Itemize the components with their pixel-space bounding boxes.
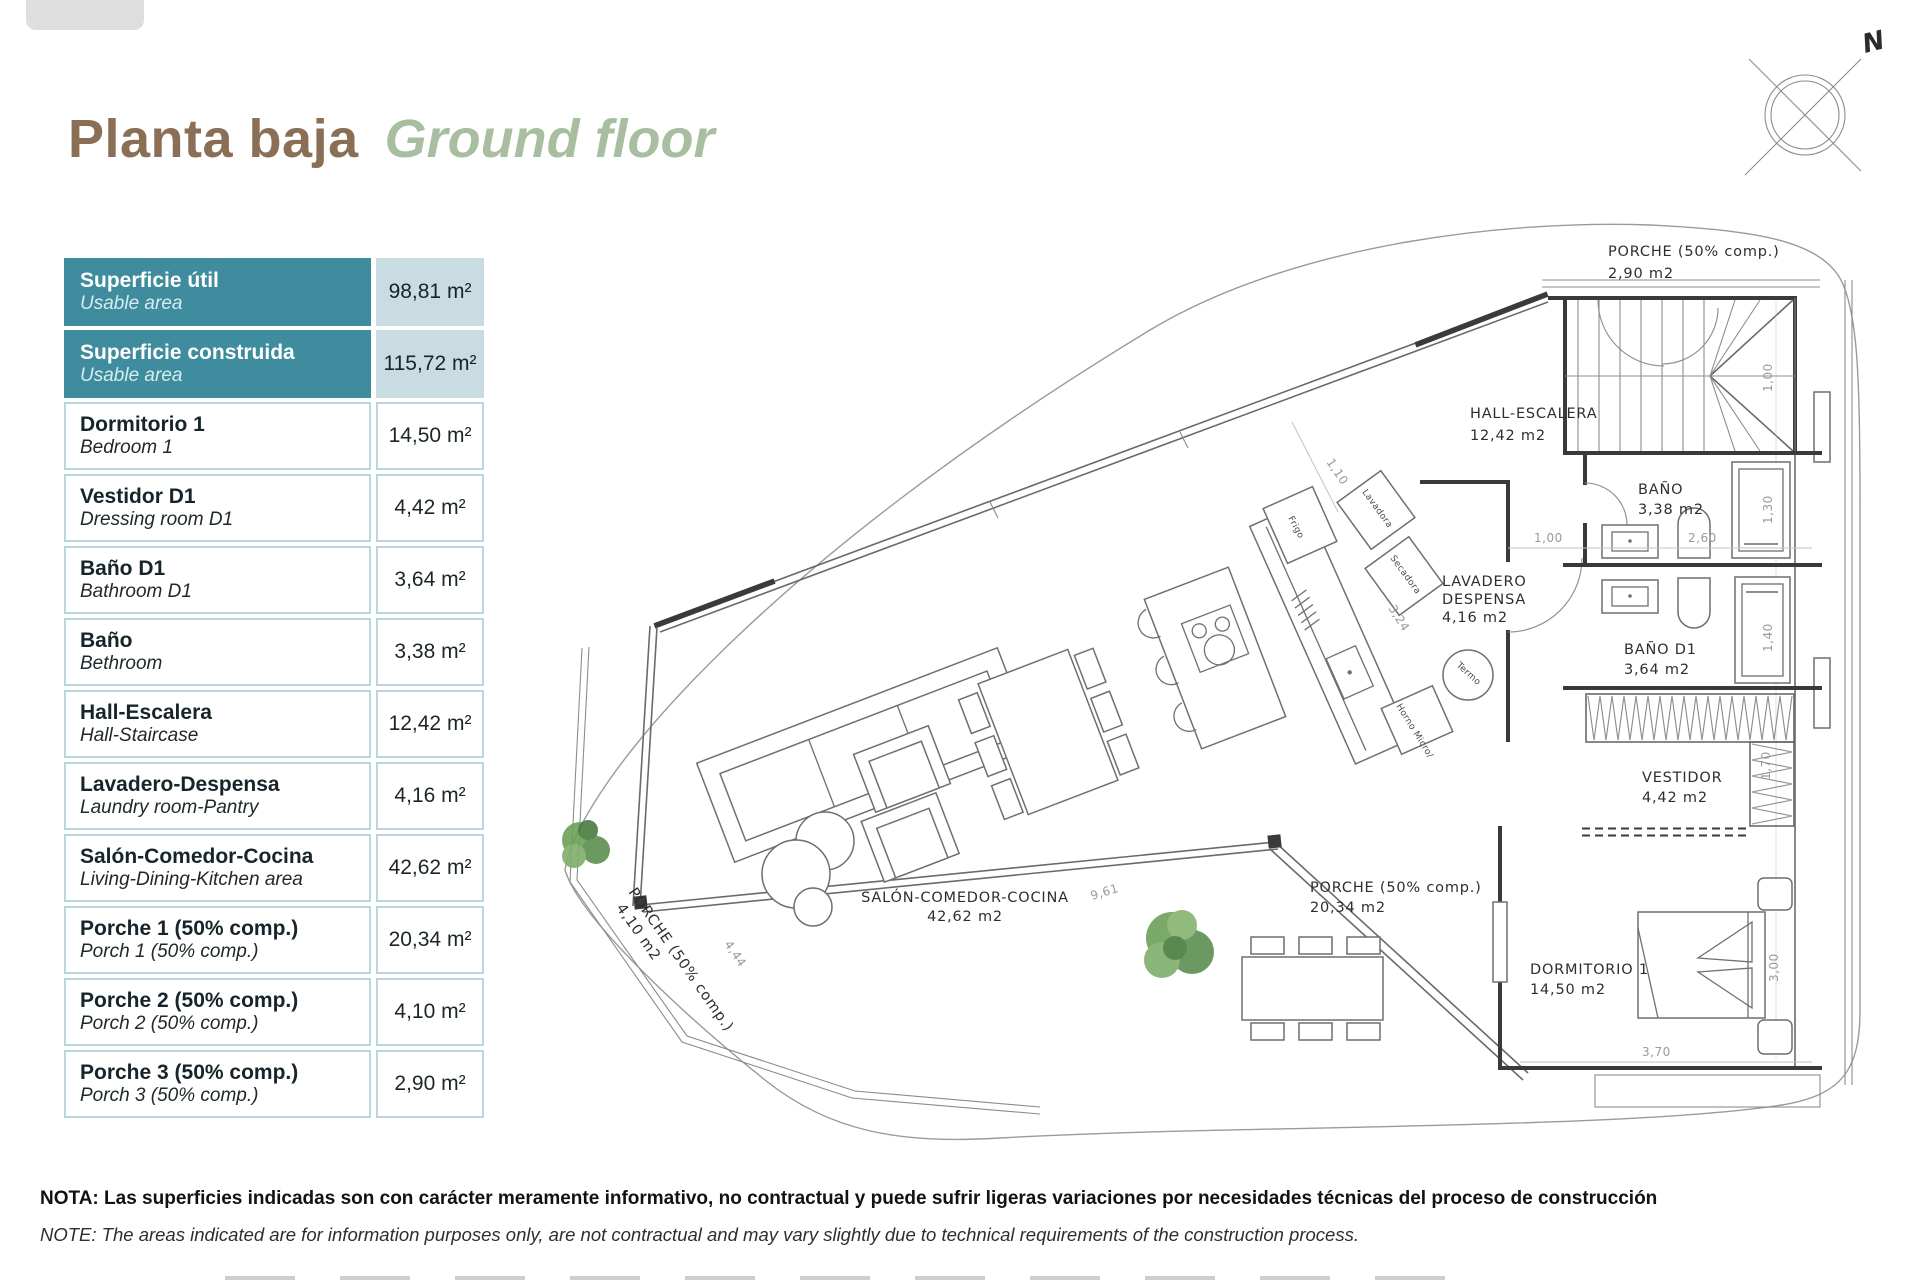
- row-value: 4,10 m²: [376, 978, 484, 1046]
- porch1-label: PORCHE (50% comp.): [1310, 880, 1482, 896]
- bedroom-label: DORMITORIO 1: [1530, 962, 1649, 978]
- dim-1-10: 1,10: [1324, 456, 1352, 488]
- row-label-en: Living-Dining-Kitchen area: [80, 869, 355, 892]
- table-row: Lavadero-DespensaLaundry room-Pantry 4,1…: [64, 762, 484, 830]
- dim-9-61: 9,61: [1089, 881, 1121, 903]
- row-label-es: Salón-Comedor-Cocina: [80, 845, 355, 869]
- dim-1-30: 1,30: [1761, 495, 1775, 524]
- porch3-area: 2,90 m2: [1608, 266, 1674, 282]
- tree: [562, 820, 610, 868]
- kitchen-island: [1130, 567, 1286, 754]
- row-label-es: Hall-Escalera: [80, 701, 355, 725]
- page-title: Planta bajaGround floor: [68, 108, 715, 170]
- porch-dining-set: [1242, 937, 1383, 1040]
- dressing-area: 4,42 m2: [1642, 790, 1708, 806]
- row-value: 98,81 m²: [376, 258, 484, 326]
- row-label-es: Superficie construida: [80, 341, 355, 365]
- bedroom-area: 14,50 m2: [1530, 982, 1606, 998]
- title-spanish: Planta baja: [68, 109, 359, 169]
- page-corner-artifact: [26, 0, 144, 30]
- floorplan-drawing: Frigo Lavadora Secadora Termo Horno Micr…: [520, 180, 1920, 1180]
- nightstand: [1758, 1020, 1792, 1054]
- row-value: 115,72 m²: [376, 330, 484, 398]
- row-label-es: Porche 1 (50% comp.): [80, 917, 355, 941]
- table-row: Superficie útilUsable area 98,81 m²: [64, 258, 484, 326]
- row-value: 4,42 m²: [376, 474, 484, 542]
- page-edge-artifact: [225, 1276, 1465, 1280]
- row-label-es: Baño: [80, 629, 355, 653]
- salon-area: 42,62 m2: [927, 909, 1003, 925]
- row-label-en: Bathroom D1: [80, 581, 355, 604]
- row-value: 12,42 m²: [376, 690, 484, 758]
- row-value: 20,34 m²: [376, 906, 484, 974]
- row-label-es: Dormitorio 1: [80, 413, 355, 437]
- bath-label: BAÑO: [1638, 481, 1683, 498]
- porch1-area: 20,34 m2: [1310, 900, 1386, 916]
- staircase: [1542, 280, 1820, 453]
- table-row: Baño D1Bathroom D1 3,64 m²: [64, 546, 484, 614]
- dim-1-70: 1,70: [1759, 751, 1773, 780]
- salon-label: SALÓN-COMEDOR-COCINA: [861, 888, 1069, 906]
- row-label-en: Bedroom 1: [80, 437, 355, 460]
- row-label-es: Lavadero-Despensa: [80, 773, 355, 797]
- bath-area: 3,38 m2: [1638, 502, 1704, 518]
- table-row: BañoBethroom 3,38 m²: [64, 618, 484, 686]
- row-label-en: Usable area: [80, 293, 355, 316]
- dressing-label: VESTIDOR: [1642, 770, 1722, 786]
- row-label-en: Porch 2 (50% comp.): [80, 1013, 355, 1036]
- bathroom-d1: [1565, 577, 1820, 688]
- row-label-en: Porch 1 (50% comp.): [80, 941, 355, 964]
- hall-label: HALL-ESCALERA: [1470, 406, 1597, 422]
- table-row: Salón-Comedor-CocinaLiving-Dining-Kitche…: [64, 834, 484, 902]
- table-row: Vestidor D1Dressing room D1 4,42 m²: [64, 474, 484, 542]
- laundry-area: 4,16 m2: [1442, 610, 1508, 626]
- row-label-en: Laundry room-Pantry: [80, 797, 355, 820]
- table-row: Porche 1 (50% comp.)Porch 1 (50% comp.) …: [64, 906, 484, 974]
- row-label-en: Porch 3 (50% comp.): [80, 1085, 355, 1108]
- row-value: 42,62 m²: [376, 834, 484, 902]
- row-value: 14,50 m²: [376, 402, 484, 470]
- floorplan-page: Planta bajaGround floor Superficie útilU…: [0, 0, 1920, 1280]
- table-row: Porche 2 (50% comp.)Porch 2 (50% comp.) …: [64, 978, 484, 1046]
- row-label-en: Dressing room D1: [80, 509, 355, 532]
- laundry-label2: DESPENSA: [1442, 592, 1526, 608]
- dim-3-70: 3,70: [1642, 1045, 1671, 1059]
- bath-d1-area: 3,64 m2: [1624, 662, 1690, 678]
- dim-1-00-stairs: 1,00: [1761, 363, 1775, 392]
- row-label-es: Vestidor D1: [80, 485, 355, 509]
- dim-1-00-hall: 1,00: [1534, 531, 1563, 545]
- dim-3-00: 3,00: [1767, 953, 1781, 982]
- footnote: NOTA: Las superficies indicadas son con …: [40, 1188, 1900, 1246]
- row-label-es: Porche 2 (50% comp.): [80, 989, 355, 1013]
- porch3-label: PORCHE (50% comp.): [1608, 244, 1780, 260]
- tree: [1144, 910, 1214, 978]
- table-row: Dormitorio 1Bedroom 1 14,50 m²: [64, 402, 484, 470]
- title-english: Ground floor: [385, 109, 715, 169]
- nightstand: [1758, 878, 1792, 910]
- laundry-label: LAVADERO: [1442, 574, 1527, 590]
- bed: [1638, 912, 1765, 1018]
- row-label-en: Bethroom: [80, 653, 355, 676]
- table-row: Superficie construidaUsable area 115,72 …: [64, 330, 484, 398]
- row-label-es: Porche 3 (50% comp.): [80, 1061, 355, 1085]
- footnote-english: NOTE: The areas indicated are for inform…: [40, 1224, 1900, 1246]
- area-table: Superficie útilUsable area 98,81 m² Supe…: [64, 258, 484, 1118]
- row-label-es: Superficie útil: [80, 269, 355, 293]
- row-label-es: Baño D1: [80, 557, 355, 581]
- row-value: 3,64 m²: [376, 546, 484, 614]
- table-row: Porche 3 (50% comp.)Porch 3 (50% comp.) …: [64, 1050, 484, 1118]
- footnote-spanish: NOTA: Las superficies indicadas son con …: [40, 1188, 1900, 1210]
- hall-area: 12,42 m2: [1470, 428, 1546, 444]
- row-value: 2,90 m²: [376, 1050, 484, 1118]
- row-value: 4,16 m²: [376, 762, 484, 830]
- dim-1-40: 1,40: [1761, 623, 1775, 652]
- bath-d1-label: BAÑO D1: [1624, 641, 1697, 658]
- compass-north-label: N: [1859, 25, 1888, 59]
- row-label-en: Usable area: [80, 365, 355, 388]
- row-value: 3,38 m²: [376, 618, 484, 686]
- toilet: [1678, 578, 1710, 628]
- table-row: Hall-EscaleraHall-Staircase 12,42 m²: [64, 690, 484, 758]
- dim-4-44: 4,44: [722, 938, 750, 970]
- row-label-en: Hall-Staircase: [80, 725, 355, 748]
- dim-2-60: 2,60: [1688, 531, 1717, 545]
